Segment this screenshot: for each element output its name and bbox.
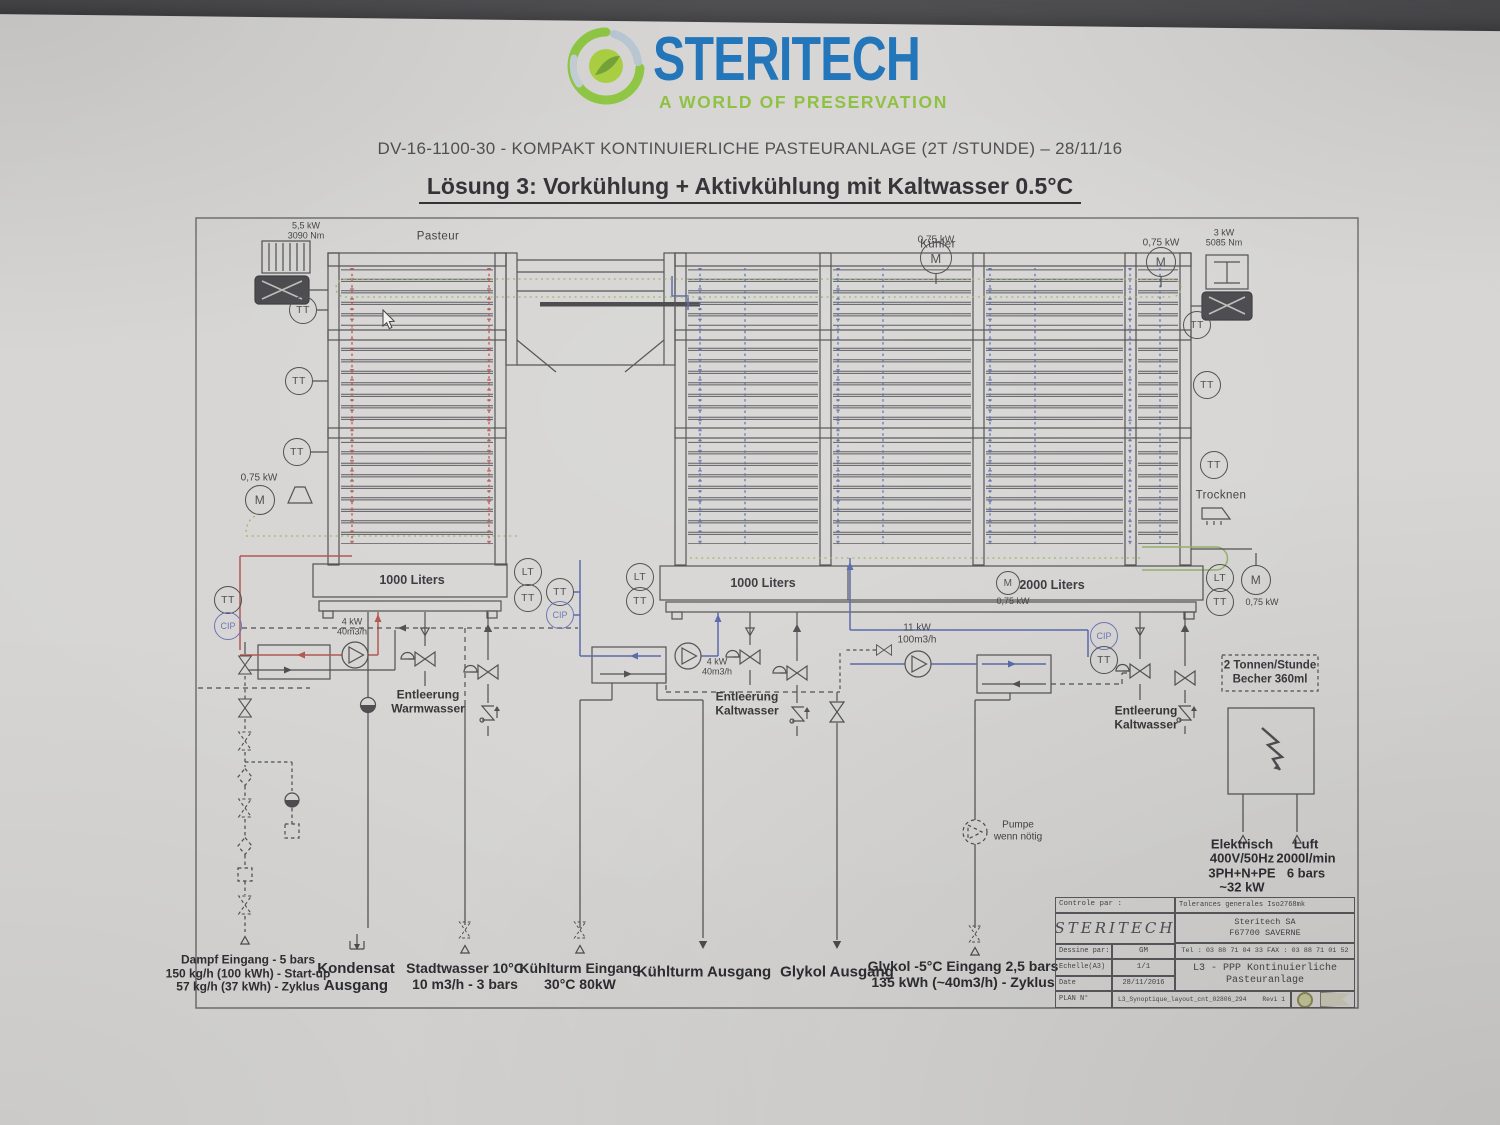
document-reference: DV-16-1100-30 - KOMPAKT KONTINUIERLICHE …	[0, 139, 1500, 159]
capacity-note: 2 Tonnen/Stunde Becher 360ml	[1224, 659, 1316, 688]
tt-instrument: TT	[214, 586, 242, 614]
title-block-date-value: 28/11/2016	[1112, 976, 1175, 991]
title-block-echelle-label: Echelle(A3)	[1055, 959, 1112, 976]
title-block-brand-script: STERITECH	[1055, 913, 1175, 944]
page-title-text: Lösung 3: Vorkühlung + Aktivkühlung mit …	[419, 173, 1081, 204]
page-title: Lösung 3: Vorkühlung + Aktivkühlung mit …	[0, 173, 1500, 200]
motor-symbol: M	[1241, 565, 1271, 595]
io-glykol-eingang: Glykol -5°C Eingang 2,5 bars 135 kWh (~4…	[868, 958, 1059, 990]
tt-instrument: TT	[1206, 588, 1234, 616]
io-kondensat-ausgang: Kondensat Ausgang	[317, 960, 395, 995]
tt-instrument: TT	[289, 296, 317, 324]
cip-instrument: CIP	[546, 601, 574, 629]
title-block-company-1: Steritech SA	[1234, 917, 1295, 928]
title-block-plan-label: PLAN N°	[1055, 991, 1112, 1008]
tank-label-1000-left: 1000 Liters	[379, 573, 444, 587]
title-block-date-label: Date	[1055, 976, 1112, 991]
title-block-revision: Revi 1	[1262, 996, 1285, 1004]
title-block-dessine-value: GM	[1112, 944, 1175, 959]
stamp-seal-icon	[1297, 992, 1313, 1008]
photo-of-drawing: STERITECH A WORLD OF PRESERVATION DV-16-…	[0, 0, 1500, 1125]
drain-warmwasser-label: Entleerung Warmwasser	[391, 688, 465, 717]
fan-right	[1191, 255, 1252, 320]
electric-supply-label: Elektrisch 400V/50Hz 3PH+N+PE ~32 kW	[1208, 837, 1275, 894]
transfer-bridge	[506, 253, 700, 372]
title-block-controle: Controle par :	[1055, 897, 1175, 913]
air-supply-label: Luft 2000l/min 6 bars	[1276, 838, 1335, 881]
title-block-dessine-label: Dessine par:	[1055, 944, 1112, 959]
title-block-drawing-title: L3 - PPP Kontinuierliche Pasteuranlage	[1175, 959, 1355, 991]
motor-rating-pasteur: 0,75 kW	[241, 472, 278, 484]
tt-instrument: TT	[514, 584, 542, 612]
title-block-tolerances: Tolerances generales Iso2768mk	[1175, 897, 1355, 913]
io-stadtwasser: Stadtwasser 10°C 10 m3/h - 3 bars	[406, 960, 524, 992]
section-label-pasteur: Pasteur	[417, 230, 459, 243]
stamp-flag-icon	[1320, 992, 1350, 1007]
tt-instrument: TT	[285, 367, 313, 395]
fan-right-rating: 3 kW 5085 Nm	[1206, 228, 1243, 249]
valves	[401, 645, 1197, 723]
steritech-logo-icon	[566, 24, 646, 108]
title-block-stamps	[1291, 991, 1355, 1008]
motor-symbol: M	[920, 242, 952, 274]
kuehler-tower	[672, 253, 1191, 565]
blower-left-rating: 5,5 kW 3090 Nm	[288, 221, 325, 242]
tt-instrument: TT	[1200, 451, 1228, 479]
title-block-contact: Tel : 03 88 71 04 33 FAX : 03 88 71 01 5…	[1175, 943, 1355, 959]
tt-instrument: TT	[283, 438, 311, 466]
lt-instrument: LT	[514, 558, 542, 586]
tt-instrument: TT	[1090, 646, 1118, 674]
brand-tagline: A WORLD OF PRESERVATION	[659, 92, 948, 113]
motor-symbol: M	[1146, 247, 1176, 277]
cip-instrument: CIP	[214, 612, 242, 640]
title-block-echelle-value: 1/1	[1112, 959, 1175, 976]
io-kuehlturm-ausgang: Kühlturm Ausgang	[637, 963, 771, 980]
title-block: Controle par : Tolerances generales Iso2…	[1055, 897, 1355, 1008]
tt-instrument: TT	[626, 587, 654, 615]
blower-left	[255, 241, 328, 304]
section-label-trocknen: Trocknen	[1196, 489, 1247, 502]
motor-rating-discharge: 0,75 kW	[1245, 597, 1278, 607]
brand-wordmark: STERITECH	[653, 24, 920, 95]
motor-symbol: M	[996, 571, 1020, 595]
tank-label-1000-mid: 1000 Liters	[730, 576, 795, 590]
heat-exchangers	[258, 645, 1051, 693]
io-kuehlturm-eingang: Kühlturm Eingang 30°C 80kW	[519, 960, 640, 992]
motor-rating-tank: 0,75 kW	[996, 596, 1029, 606]
pump-optional-note: Pumpe wenn nötig	[994, 820, 1042, 843]
tt-instrument: TT	[1183, 311, 1211, 339]
pump-rating-hot: 4 kW 40m3/h	[337, 617, 367, 638]
title-block-plan-value: L3_Synoptique_layout_cnt_02806_294	[1118, 996, 1246, 1004]
tank-label-2000: 2000 Liters	[1019, 578, 1084, 592]
pasteur-tower	[311, 253, 506, 565]
motor-symbol: M	[245, 485, 275, 515]
tt-instrument: TT	[1193, 371, 1221, 399]
drain-kaltwasser-label-1: Entleerung Kaltwasser	[715, 690, 778, 719]
io-dampf-eingang: Dampf Eingang - 5 bars 150 kg/h (100 kWh…	[166, 953, 331, 994]
drain-kaltwasser-label-2: Entleerung Kaltwasser	[1114, 704, 1177, 733]
pump-rating-glykol: 11 kW 100m3/h	[898, 623, 937, 646]
pump-rating-cold: 4 kW 40m3/h	[702, 657, 732, 678]
title-block-company-2: F67700 SAVERNE	[1229, 928, 1300, 939]
